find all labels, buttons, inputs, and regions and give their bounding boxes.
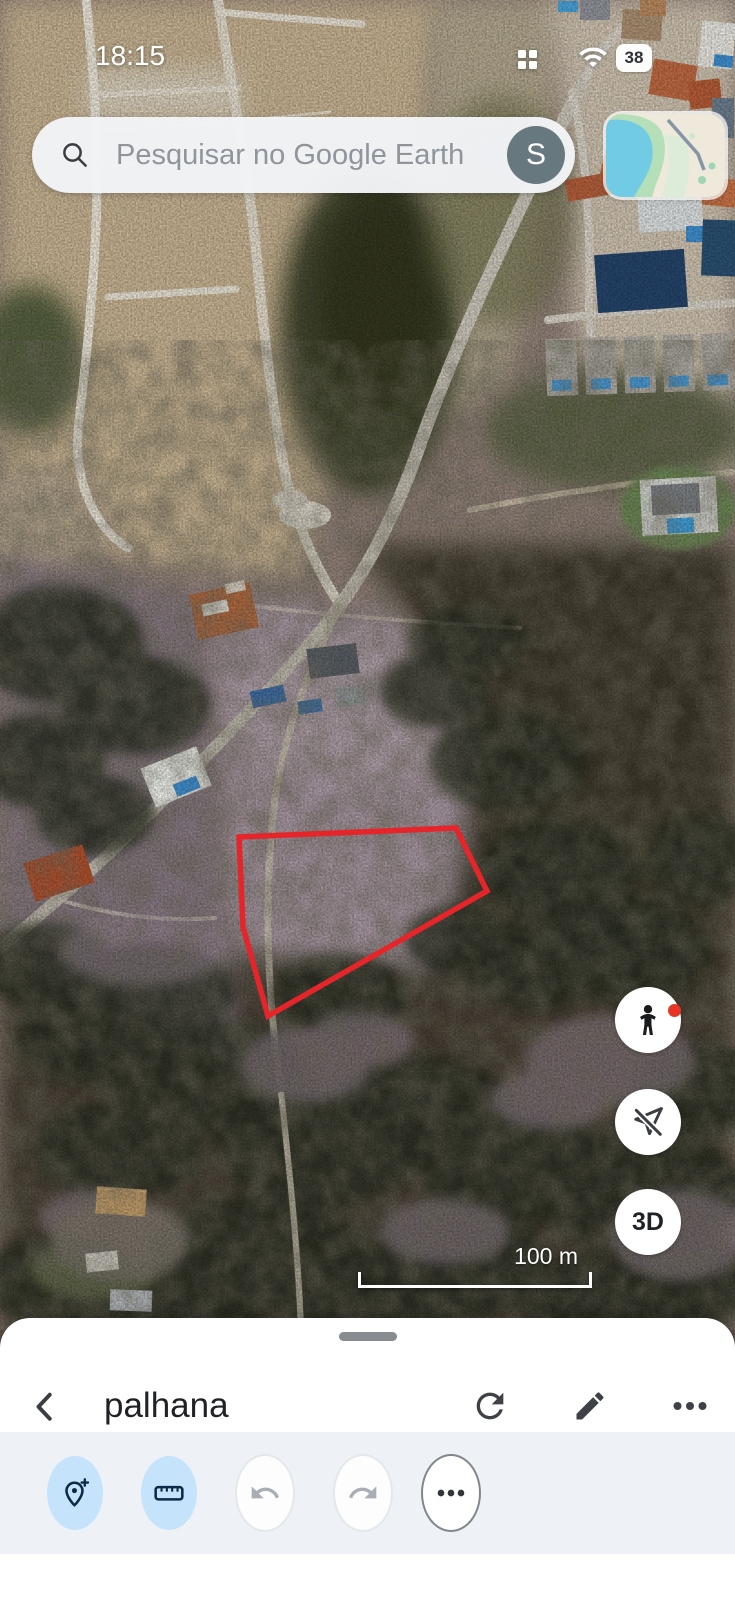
edit-toolbar bbox=[0, 1432, 735, 1554]
ruler-icon bbox=[153, 1477, 185, 1509]
bottom-sheet: palhana bbox=[0, 1318, 735, 1600]
redo-button[interactable] bbox=[333, 1454, 393, 1532]
google-earth-app: 18:15 38 Pesquisar no Google Earth S bbox=[0, 0, 735, 1600]
add-placemark-icon bbox=[59, 1477, 91, 1509]
project-title: palhana bbox=[104, 1386, 470, 1426]
measure-button[interactable] bbox=[141, 1456, 197, 1530]
location-disabled-icon bbox=[630, 1104, 666, 1140]
add-placemark-button[interactable] bbox=[47, 1456, 103, 1530]
pegman-button[interactable] bbox=[615, 987, 681, 1053]
search-placeholder: Pesquisar no Google Earth bbox=[116, 139, 507, 172]
pegman-icon bbox=[630, 1002, 666, 1038]
location-disabled-button[interactable] bbox=[615, 1089, 681, 1155]
layers-button[interactable] bbox=[606, 114, 725, 197]
three-d-button[interactable]: 3D bbox=[615, 1189, 681, 1255]
search-bar[interactable]: Pesquisar no Google Earth S bbox=[32, 117, 575, 193]
toolbar-more-button[interactable] bbox=[421, 1454, 481, 1532]
undo-icon bbox=[249, 1477, 281, 1509]
search-icon bbox=[60, 140, 90, 170]
more-dots-icon bbox=[435, 1477, 467, 1509]
pegman-badge bbox=[668, 1004, 681, 1017]
overflow-menu-button[interactable] bbox=[670, 1386, 710, 1426]
avatar-initial: S bbox=[526, 138, 546, 172]
refresh-button[interactable] bbox=[470, 1386, 510, 1426]
three-d-label: 3D bbox=[632, 1208, 664, 1237]
undo-button[interactable] bbox=[235, 1454, 295, 1532]
layers-map-preview bbox=[606, 114, 725, 197]
back-button[interactable] bbox=[28, 1388, 64, 1424]
drag-handle[interactable] bbox=[339, 1332, 397, 1341]
account-avatar[interactable]: S bbox=[507, 126, 565, 184]
redo-icon bbox=[347, 1477, 379, 1509]
edit-button[interactable] bbox=[572, 1388, 608, 1424]
